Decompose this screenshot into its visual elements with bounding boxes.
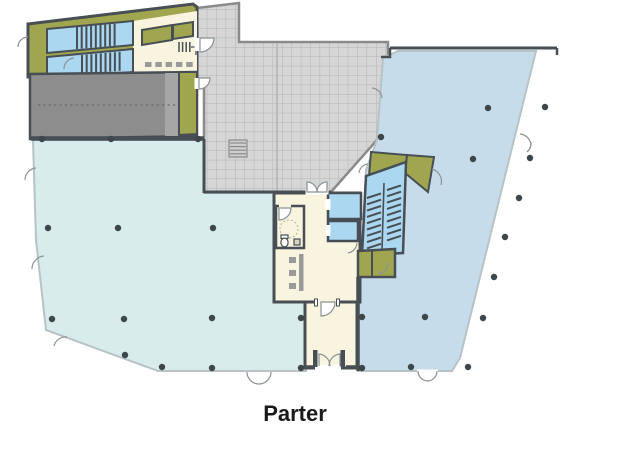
sink-icon — [294, 239, 300, 245]
elevator-shaft — [328, 221, 358, 241]
elevator-shaft — [328, 193, 361, 219]
ramp-edge-strip — [165, 73, 179, 136]
courtyard-stair-icon — [229, 140, 247, 157]
floor-label: Parter — [263, 401, 327, 426]
door-leaf — [54, 337, 67, 346]
ramp-block — [30, 72, 204, 139]
service-strip — [179, 72, 197, 135]
service-room — [173, 22, 193, 39]
door-jamb — [313, 350, 318, 367]
northwest-block — [28, 4, 197, 79]
door-jamb — [341, 350, 346, 367]
core-service-room-south — [358, 249, 395, 277]
floor-plan-page: Parter — [0, 0, 640, 449]
door-leaf — [520, 134, 531, 146]
nw-stair-treads — [82, 52, 120, 74]
door-leaf — [247, 372, 259, 384]
courtyard-outline — [197, 3, 388, 192]
elevator-door-opening — [326, 199, 331, 210]
courtyard-terrace — [197, 3, 388, 192]
nw-stair-treads — [77, 24, 115, 49]
door-leaf — [259, 372, 271, 384]
floor-plan-svg: Parter — [0, 0, 640, 449]
toilet-icon — [281, 238, 288, 247]
elevator-door-opening — [326, 225, 331, 236]
